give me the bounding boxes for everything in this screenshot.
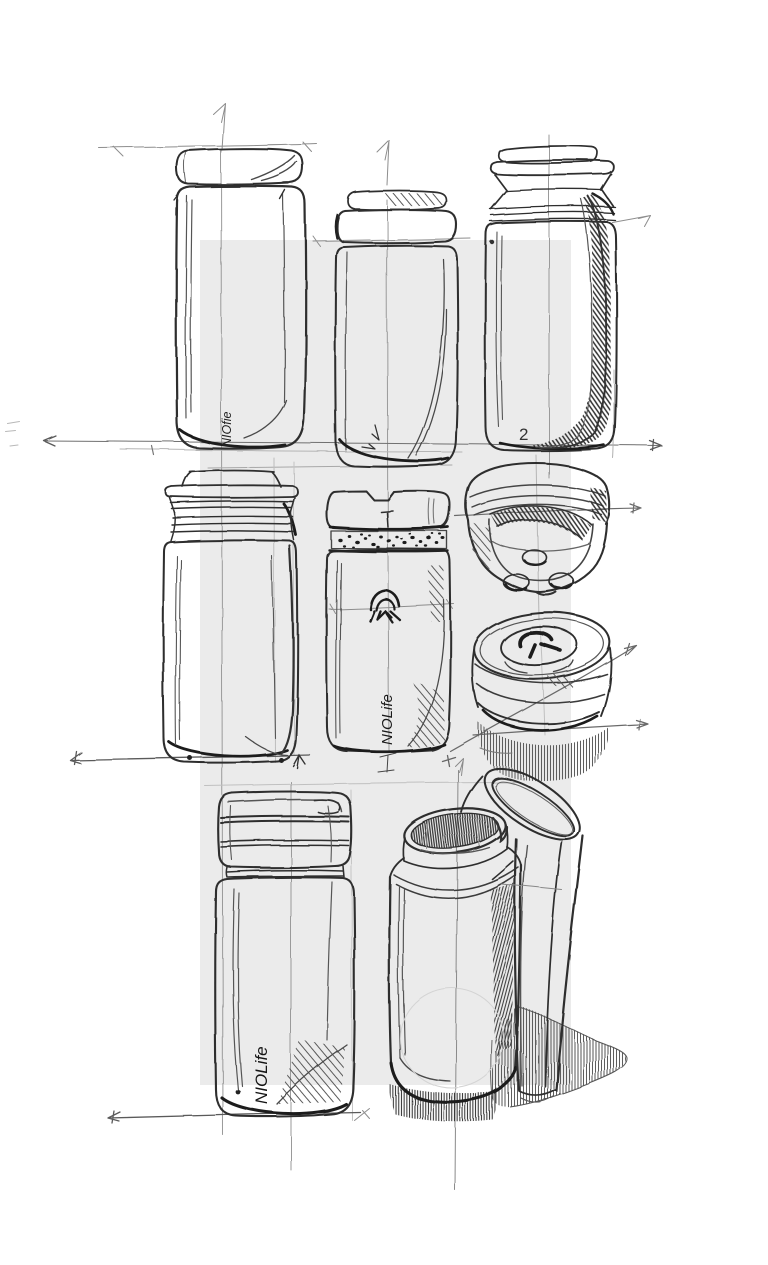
- svg-text:NIOLife: NIOLife: [252, 1046, 271, 1104]
- svg-text:NIOLife: NIOLife: [379, 694, 396, 745]
- svg-text:2: 2: [519, 425, 528, 444]
- svg-text:NIOfie: NIOfie: [220, 412, 234, 447]
